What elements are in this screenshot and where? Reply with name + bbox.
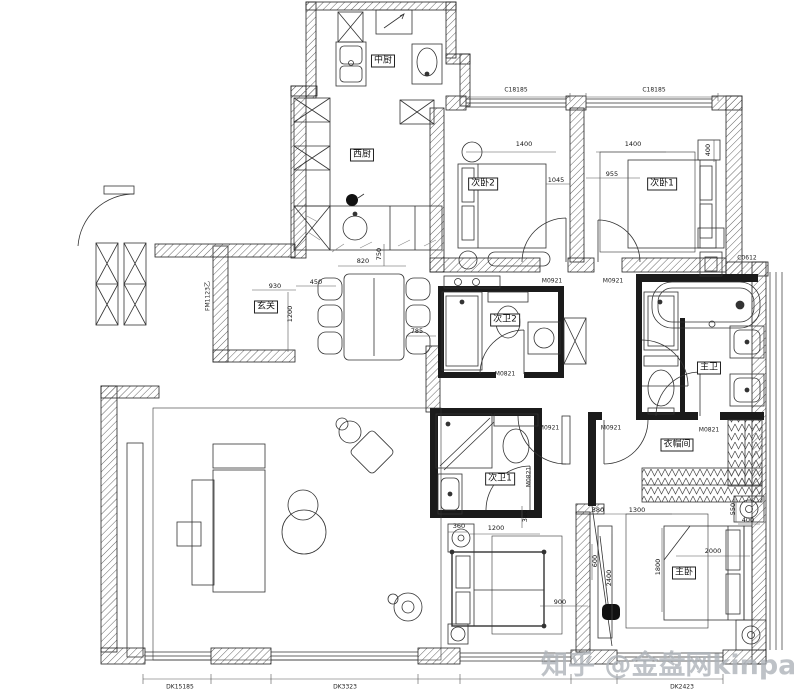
furniture	[96, 10, 766, 660]
dim-bed1-400: 400	[704, 144, 712, 156]
dim-bed1-1400: 1400	[625, 140, 642, 148]
doors	[78, 186, 700, 510]
dim-mb-1300: 1300	[629, 506, 646, 514]
dim-hall-785: 785	[411, 327, 423, 335]
door-code-m0821-c: M0821	[526, 467, 533, 487]
dim-entry-450: 450	[310, 278, 322, 286]
window-code-c0612: C0612	[737, 255, 756, 262]
kitchen-west	[294, 98, 442, 252]
dim-table-820: 820	[357, 257, 369, 265]
entry-door-leaf	[104, 186, 134, 194]
room-label-bedroom1: 次卧1	[647, 178, 677, 191]
floor-plan: 中厨 西厨 次卧2 次卧1 玄关 次卫2 主卫 次卫1 衣帽间 主卧 C1818…	[0, 0, 794, 696]
mid-bedroom-furniture	[448, 524, 562, 644]
room-label-kitchen-west: 西厨	[350, 149, 374, 162]
bath2-door	[480, 330, 524, 374]
entry-door-code: FM1123乙	[203, 281, 212, 311]
dining-set	[318, 274, 430, 360]
door-code-m0821-a: M0821	[495, 371, 515, 378]
entry-cabinets	[96, 243, 146, 325]
window-code-dk2423: DK2423	[670, 684, 694, 691]
room-label-bath2: 次卫2	[490, 314, 520, 327]
door-code-m0821-b: M0821	[699, 427, 719, 434]
door-code-m0921-b: M0921	[603, 278, 623, 285]
dim-entry-1200: 1200	[286, 306, 294, 323]
dim-table-750: 750	[375, 248, 383, 260]
dim-entry-930: 930	[269, 282, 281, 290]
room-label-bedroom2: 次卧2	[468, 178, 498, 191]
room-label-bath1: 次卫1	[485, 473, 515, 486]
room-label-entry: 玄关	[254, 301, 278, 314]
dim-mb-600: 600	[591, 555, 599, 567]
mid-bedroom-door-leaf	[562, 416, 570, 464]
dim-bed2-1400: 1400	[516, 140, 533, 148]
dim-mb-2000: 2000	[705, 547, 722, 555]
bedroom2-furniture	[458, 142, 550, 269]
exterior-walls	[101, 2, 768, 664]
dim-mb-1800: 1800	[654, 559, 662, 576]
window-code-c18185-right: C18185	[642, 87, 665, 94]
window-code-dk15185: DK15185	[166, 684, 194, 691]
dim-bed1-955: 955	[606, 170, 618, 178]
room-label-kitchen-cn: 中厨	[371, 55, 395, 68]
entry-door-arc	[78, 194, 134, 246]
bedroom1-door	[598, 220, 640, 262]
dim-mb-2400: 2400	[605, 570, 613, 587]
plan-drawing	[0, 0, 794, 696]
dim-bath1-390: 390	[521, 510, 529, 522]
master-bath-door	[656, 372, 700, 416]
dim-bed2-1045: 1045	[548, 176, 565, 184]
bedroom2-door	[522, 218, 566, 262]
door-code-m0921-d: M0921	[601, 425, 621, 432]
watermark: 知乎 @金盘网kinpan	[541, 643, 794, 682]
dim-bath1-360: 360	[453, 522, 465, 530]
dim-mb-550: 550	[729, 503, 737, 515]
room-label-master-bath: 主卫	[697, 362, 721, 375]
kitchen-cn	[336, 10, 442, 86]
bedroom1-furniture	[600, 140, 724, 276]
dim-mb-380: 380	[592, 506, 604, 514]
room-label-cloakroom: 衣帽间	[660, 439, 693, 452]
dim-mb-400: 400	[742, 516, 754, 524]
door-code-m0921-a: M0921	[542, 278, 562, 285]
dim-bath1-1200: 1200	[488, 524, 505, 532]
room-label-master-bedroom: 主卧	[672, 567, 696, 580]
window-code-c18185-left: C18185	[504, 87, 527, 94]
door-code-m0921-c: M0921	[539, 425, 559, 432]
window-code-dk3323: DK3323	[333, 684, 357, 691]
dim-midbed-900: 900	[554, 598, 566, 606]
living-room-furniture	[127, 408, 441, 660]
